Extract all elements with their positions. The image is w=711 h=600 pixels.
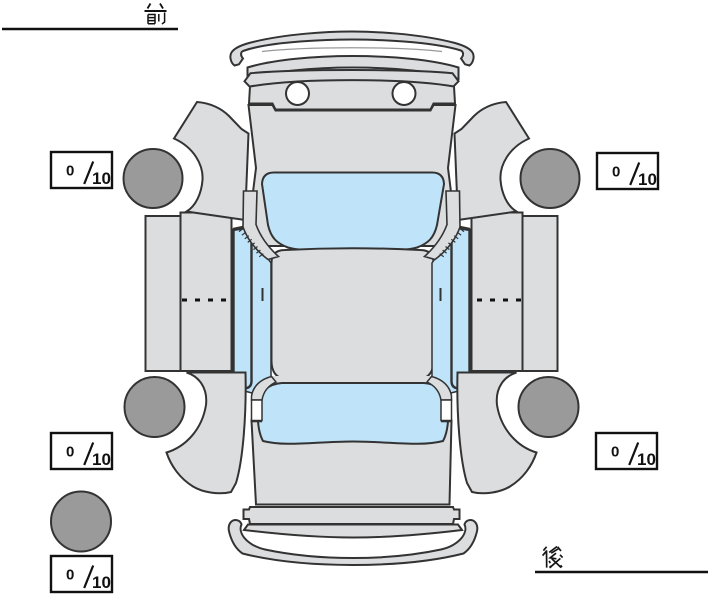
svg-text:0: 0 bbox=[611, 444, 619, 461]
svg-text:0: 0 bbox=[66, 444, 74, 461]
svg-text:0: 0 bbox=[66, 163, 74, 180]
svg-text:0: 0 bbox=[612, 164, 620, 181]
svg-text:10: 10 bbox=[92, 573, 111, 592]
svg-text:10: 10 bbox=[638, 170, 657, 189]
svg-text:0: 0 bbox=[66, 567, 74, 584]
svg-text:10: 10 bbox=[92, 169, 111, 188]
svg-text:10: 10 bbox=[637, 450, 656, 469]
svg-text:10: 10 bbox=[92, 450, 111, 469]
